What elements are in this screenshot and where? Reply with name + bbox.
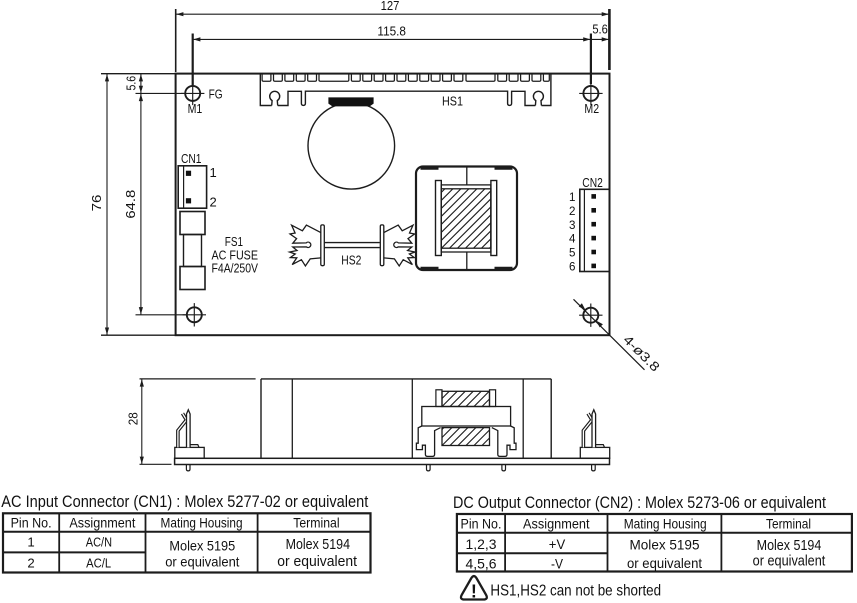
svg-text:or equivalent: or equivalent	[165, 553, 239, 569]
svg-text:DC Output Connector (CN2) : Mo: DC Output Connector (CN2) : Molex 5273-0…	[453, 493, 826, 512]
svg-text:F4A/250V: F4A/250V	[212, 260, 259, 275]
svg-text:HS1,HS2 can not be shorted: HS1,HS2 can not be shorted	[490, 583, 661, 600]
svg-text:Molex 5195: Molex 5195	[169, 537, 235, 553]
svg-text:Molex 5195: Molex 5195	[630, 536, 700, 552]
svg-text:Pin No.: Pin No.	[11, 515, 52, 531]
svg-text:!: !	[471, 581, 477, 601]
svg-text:4,5,6: 4,5,6	[466, 556, 497, 571]
svg-text:Molex 5194: Molex 5194	[757, 538, 822, 554]
svg-text:Assignment: Assignment	[69, 515, 135, 531]
svg-text:FG: FG	[209, 87, 223, 102]
svg-text:HS2: HS2	[341, 252, 361, 267]
svg-text:5.6: 5.6	[125, 76, 139, 91]
svg-text:127: 127	[381, 0, 400, 13]
svg-text:Molex 5194: Molex 5194	[286, 537, 350, 553]
svg-text:6: 6	[569, 261, 575, 274]
svg-text:CN2: CN2	[582, 175, 603, 190]
svg-text:or equivalent: or equivalent	[277, 554, 357, 570]
svg-text:M2: M2	[584, 101, 599, 116]
svg-text:28: 28	[127, 412, 141, 425]
svg-text:5: 5	[569, 247, 575, 260]
svg-text:115.8: 115.8	[377, 25, 406, 39]
svg-text:AC Input Connector (CN1) : Mol: AC Input Connector (CN1) : Molex 5277-02…	[1, 492, 368, 511]
svg-text:AC/N: AC/N	[86, 535, 112, 550]
svg-text:2: 2	[569, 205, 575, 218]
svg-text:Terminal: Terminal	[293, 515, 339, 531]
svg-text:AC/L: AC/L	[86, 556, 111, 571]
svg-text:2: 2	[27, 556, 34, 571]
svg-text:3: 3	[569, 219, 575, 232]
svg-text:Mating Housing: Mating Housing	[624, 516, 707, 532]
svg-text:1: 1	[569, 191, 575, 204]
svg-text:Pin No.: Pin No.	[461, 516, 502, 532]
svg-text:HS1: HS1	[442, 93, 463, 108]
svg-text:1: 1	[210, 165, 217, 180]
svg-text:4: 4	[569, 233, 576, 246]
svg-text:CN1: CN1	[181, 151, 202, 166]
svg-text:or equivalent: or equivalent	[753, 554, 826, 570]
svg-text:1,2,3: 1,2,3	[466, 537, 497, 552]
svg-text:+V: +V	[549, 537, 565, 552]
svg-text:Mating Housing: Mating Housing	[161, 515, 243, 531]
svg-text:1: 1	[27, 535, 34, 550]
svg-text:76: 76	[90, 195, 104, 212]
svg-text:64.8: 64.8	[124, 190, 138, 219]
svg-text:5.6: 5.6	[592, 23, 608, 37]
svg-text:Assignment: Assignment	[523, 516, 590, 532]
svg-text:-V: -V	[551, 556, 563, 571]
svg-text:or equivalent: or equivalent	[627, 555, 702, 571]
svg-text:M1: M1	[188, 101, 203, 116]
svg-text:2: 2	[210, 194, 217, 209]
svg-text:Terminal: Terminal	[766, 516, 811, 532]
